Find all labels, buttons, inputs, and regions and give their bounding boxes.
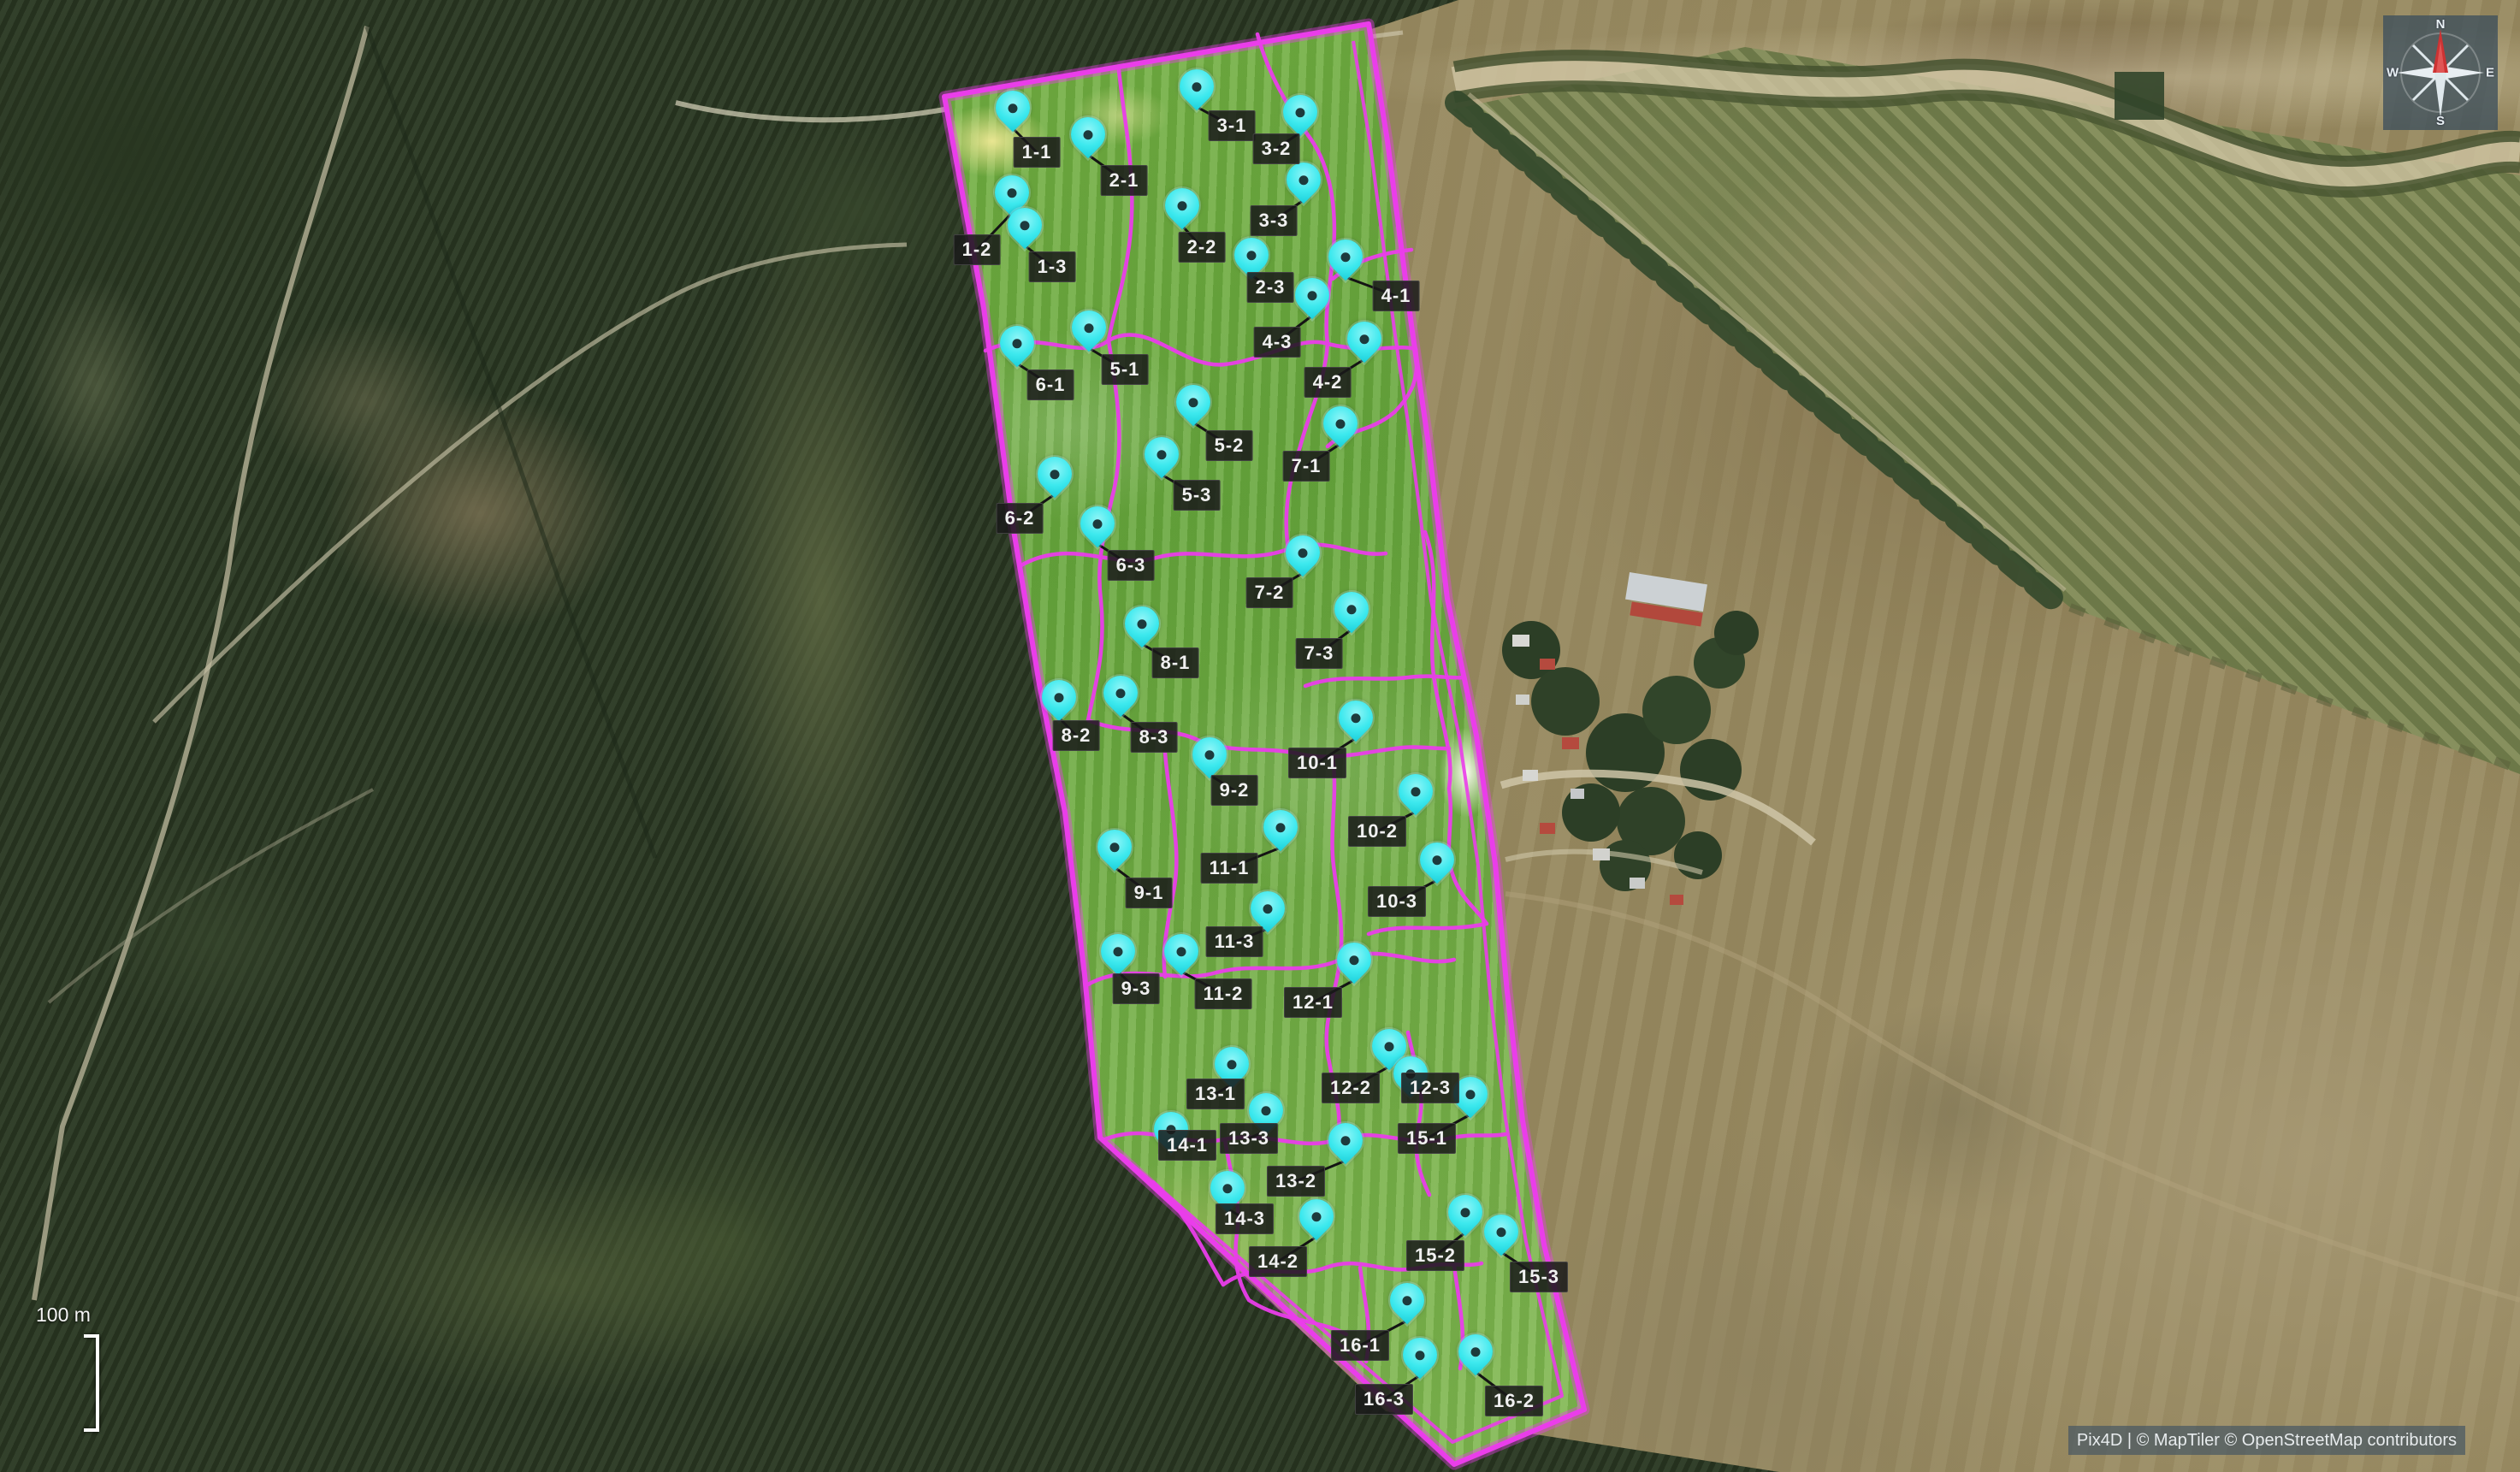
- location-pin-icon[interactable]: [1441, 1188, 1490, 1237]
- location-pin-icon[interactable]: [1293, 1192, 1341, 1241]
- location-pin-icon[interactable]: [1035, 673, 1084, 722]
- pin-center-dot: [1296, 546, 1310, 559]
- map-attribution[interactable]: Pix4D | © MapTiler © OpenStreetMap contr…: [2068, 1426, 2465, 1455]
- pin-center-dot: [1345, 602, 1358, 616]
- marker-label[interactable]: 2-3: [1247, 272, 1294, 303]
- marker-label[interactable]: 12-1: [1284, 987, 1342, 1018]
- marker-label[interactable]: 16-3: [1355, 1384, 1413, 1415]
- pin-center-dot: [1221, 1181, 1234, 1195]
- location-pin-icon[interactable]: [1094, 927, 1143, 976]
- pin-center-dot: [1469, 1345, 1482, 1358]
- location-pin-icon[interactable]: [1118, 600, 1167, 648]
- pin-center-dot: [1203, 748, 1216, 761]
- pin-center-dot: [1245, 248, 1258, 262]
- location-pin-icon[interactable]: [1158, 181, 1207, 230]
- pin-center-dot: [1261, 902, 1275, 915]
- marker-label[interactable]: 8-1: [1152, 647, 1199, 678]
- location-pin-icon[interactable]: [1173, 62, 1222, 111]
- marker-label[interactable]: 13-3: [1220, 1123, 1278, 1154]
- compass-east-label: E: [2486, 66, 2494, 80]
- pin-center-dot: [1347, 953, 1361, 967]
- location-pin-icon[interactable]: [1276, 88, 1325, 137]
- marker-label[interactable]: 3-2: [1253, 133, 1300, 164]
- location-pin-icon[interactable]: [1138, 430, 1186, 479]
- location-pin-icon[interactable]: [1332, 694, 1381, 742]
- marker-label[interactable]: 15-3: [1510, 1262, 1568, 1292]
- pin-center-dot: [1111, 944, 1125, 958]
- pin-center-dot: [1174, 944, 1188, 958]
- marker-label[interactable]: 3-1: [1209, 110, 1256, 141]
- marker-label[interactable]: 2-2: [1179, 232, 1226, 263]
- location-pin-icon[interactable]: [1413, 836, 1462, 884]
- compass-rose[interactable]: N E S W: [2383, 15, 2498, 130]
- marker-label[interactable]: 10-1: [1288, 748, 1346, 778]
- location-pin-icon[interactable]: [1383, 1276, 1432, 1325]
- pin-center-dot: [1052, 690, 1066, 704]
- marker-label[interactable]: 16-1: [1331, 1330, 1389, 1361]
- marker-label[interactable]: 14-3: [1216, 1203, 1274, 1234]
- marker-label[interactable]: 9-3: [1113, 973, 1160, 1004]
- pin-center-dot: [1005, 186, 1019, 199]
- location-pin-icon[interactable]: [1065, 304, 1114, 352]
- pin-center-dot: [1048, 467, 1062, 481]
- location-pin-icon[interactable]: [1157, 927, 1206, 976]
- marker-label[interactable]: 14-1: [1158, 1130, 1216, 1161]
- marker-label[interactable]: 8-2: [1053, 720, 1100, 751]
- marker-label[interactable]: 15-1: [1398, 1123, 1456, 1154]
- marker-label[interactable]: 12-2: [1322, 1073, 1380, 1103]
- pin-center-dot: [1334, 417, 1347, 430]
- marker-label[interactable]: 4-2: [1304, 367, 1352, 398]
- pin-center-dot: [1430, 853, 1444, 866]
- marker-label[interactable]: 7-1: [1283, 451, 1330, 482]
- marker-label[interactable]: 10-2: [1348, 816, 1406, 847]
- pin-center-dot: [1082, 321, 1096, 334]
- location-pin-icon[interactable]: [1091, 823, 1139, 872]
- pin-center-dot: [1108, 840, 1121, 854]
- location-pin-icon[interactable]: [1257, 803, 1305, 852]
- pin-center-dot: [1186, 395, 1200, 409]
- pin-center-dot: [1190, 80, 1204, 93]
- marker-label[interactable]: 6-1: [1027, 369, 1074, 400]
- pin-center-dot: [1114, 686, 1127, 700]
- marker-label[interactable]: 15-2: [1406, 1240, 1464, 1271]
- pin-center-dot: [1006, 101, 1020, 115]
- marker-label[interactable]: 1-2: [954, 234, 1001, 265]
- pin-center-dot: [1400, 1293, 1414, 1307]
- marker-label[interactable]: 14-2: [1249, 1246, 1307, 1277]
- marker-label[interactable]: 2-1: [1101, 165, 1148, 196]
- pin-center-dot: [1349, 711, 1363, 724]
- location-pin-icon[interactable]: [993, 319, 1042, 368]
- location-pin-icon[interactable]: [1322, 1116, 1370, 1165]
- location-pin-icon[interactable]: [1288, 271, 1337, 320]
- marker-label[interactable]: 11-3: [1206, 926, 1263, 957]
- marker-label[interactable]: 4-3: [1254, 327, 1301, 358]
- marker-label[interactable]: 1-1: [1014, 137, 1061, 168]
- pin-center-dot: [1293, 105, 1307, 119]
- scale-bar-bracket: [84, 1334, 99, 1432]
- marker-label[interactable]: 13-1: [1186, 1079, 1245, 1109]
- marker-layer: 1-1 1-2 1-3 2-1 2-2 2-3 3-1 3-2 3-3 4-1: [0, 0, 2520, 1472]
- compass-west-label: W: [2387, 66, 2399, 80]
- location-pin-icon[interactable]: [1244, 884, 1293, 933]
- pin-center-dot: [1091, 517, 1104, 530]
- scale-bar-label: 100 m: [36, 1304, 91, 1326]
- location-pin-icon[interactable]: [1330, 936, 1379, 984]
- marker-label[interactable]: 11-1: [1201, 853, 1258, 884]
- pin-center-dot: [1010, 336, 1024, 350]
- marker-label[interactable]: 4-1: [1373, 281, 1420, 311]
- satellite-map[interactable]: 1-1 1-2 1-3 2-1 2-2 2-3 3-1 3-2 3-3 4-1: [0, 0, 2520, 1472]
- compass-star-icon: [2383, 15, 2498, 130]
- marker-label[interactable]: 12-3: [1401, 1073, 1459, 1103]
- location-pin-icon[interactable]: [1322, 233, 1370, 281]
- marker-label[interactable]: 13-2: [1267, 1166, 1325, 1197]
- marker-label[interactable]: 5-2: [1206, 430, 1253, 461]
- marker-label[interactable]: 7-3: [1296, 638, 1343, 669]
- pin-center-dot: [1382, 1039, 1396, 1053]
- marker-label[interactable]: 9-1: [1126, 878, 1173, 908]
- compass-north-label: N: [2436, 17, 2446, 32]
- pin-center-dot: [1305, 288, 1319, 302]
- pin-center-dot: [1259, 1103, 1273, 1117]
- pin-center-dot: [1155, 447, 1168, 461]
- scale-bar: 100 m: [36, 1304, 91, 1327]
- marker-label[interactable]: 10-3: [1368, 886, 1426, 917]
- location-pin-icon[interactable]: [1340, 315, 1389, 364]
- pin-center-dot: [1018, 218, 1032, 232]
- location-pin-icon[interactable]: [1031, 450, 1080, 499]
- location-pin-icon[interactable]: [1074, 500, 1122, 548]
- location-pin-icon[interactable]: [1186, 730, 1234, 779]
- marker-label[interactable]: 3-3: [1251, 205, 1298, 236]
- location-pin-icon[interactable]: [1328, 585, 1376, 634]
- pin-center-dot: [1297, 173, 1310, 186]
- pin-center-dot: [1225, 1057, 1239, 1071]
- location-pin-icon[interactable]: [1452, 1327, 1500, 1376]
- location-pin-icon[interactable]: [1097, 669, 1145, 718]
- location-pin-icon[interactable]: [1169, 378, 1218, 427]
- pin-center-dot: [1135, 617, 1149, 630]
- pin-center-dot: [1081, 127, 1095, 141]
- location-pin-icon[interactable]: [1316, 399, 1365, 448]
- location-pin-icon[interactable]: [1477, 1208, 1526, 1256]
- pin-center-dot: [1274, 820, 1287, 834]
- pin-center-dot: [1310, 1209, 1323, 1223]
- marker-label[interactable]: 5-3: [1174, 480, 1221, 511]
- location-pin-icon[interactable]: [989, 84, 1038, 133]
- location-pin-icon[interactable]: [1064, 110, 1113, 159]
- pin-center-dot: [1339, 250, 1352, 263]
- location-pin-icon[interactable]: [1396, 1331, 1445, 1380]
- pin-center-dot: [1458, 1205, 1472, 1219]
- pin-center-dot: [1494, 1225, 1508, 1238]
- pin-center-dot: [1409, 784, 1423, 798]
- location-pin-icon[interactable]: [1392, 767, 1440, 816]
- marker-label[interactable]: 1-3: [1029, 251, 1076, 282]
- pin-center-dot: [1339, 1133, 1352, 1147]
- marker-label[interactable]: 6-2: [997, 503, 1044, 534]
- marker-label[interactable]: 6-3: [1108, 550, 1155, 581]
- marker-label[interactable]: 7-2: [1246, 577, 1293, 608]
- compass-south-label: S: [2436, 114, 2445, 128]
- pin-center-dot: [1175, 198, 1189, 212]
- marker-label[interactable]: 5-1: [1102, 354, 1149, 385]
- location-pin-icon[interactable]: [1279, 529, 1328, 577]
- marker-label[interactable]: 16-2: [1485, 1386, 1543, 1416]
- pin-center-dot: [1413, 1348, 1427, 1362]
- pin-center-dot: [1464, 1087, 1477, 1101]
- marker-label[interactable]: 9-2: [1211, 775, 1258, 806]
- marker-label[interactable]: 8-3: [1131, 722, 1178, 753]
- marker-label[interactable]: 11-2: [1195, 978, 1252, 1009]
- pin-center-dot: [1358, 332, 1371, 346]
